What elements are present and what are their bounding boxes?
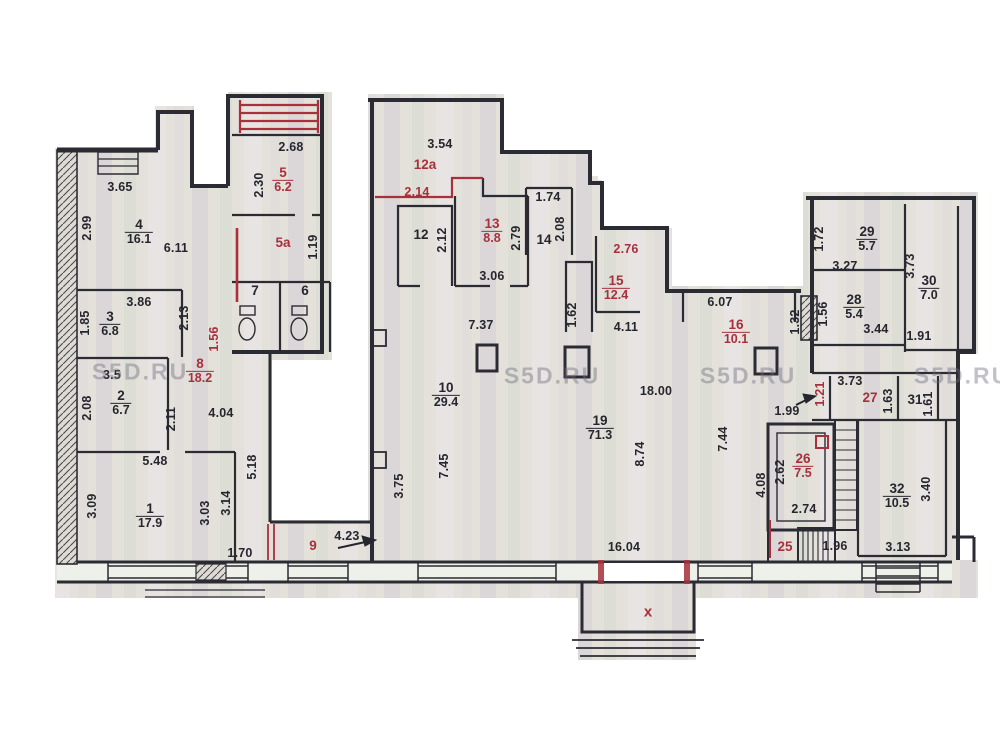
floor-plan-drawing (0, 0, 1000, 750)
floor-plan-page: 117.926.736.8416.156.25a76818.291029.412… (0, 0, 1000, 750)
